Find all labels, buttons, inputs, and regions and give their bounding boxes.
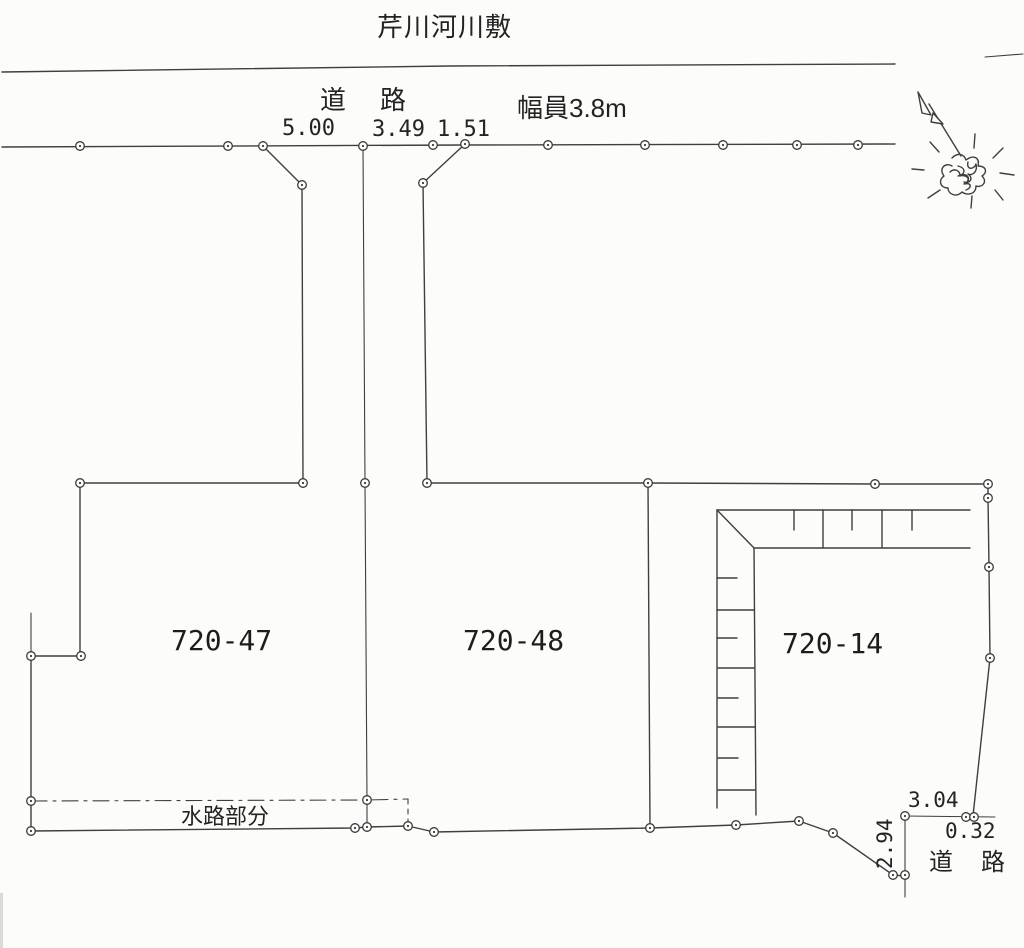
parcel-label-720-48: 720-48 <box>463 626 564 657</box>
parcel-48-14-north-boundary <box>427 483 988 484</box>
parcel-47-west-boundary <box>31 483 80 656</box>
south-boundary <box>31 821 905 876</box>
top-road-label: 道 路 <box>320 86 410 115</box>
dimension-3-49: 3.49 <box>372 118 425 142</box>
waterway-label: 水路部分 <box>181 805 269 829</box>
dim-line-horizontal <box>905 816 995 817</box>
riverbed-edge-line <box>2 64 895 72</box>
map-title: 芹川河川敷 <box>377 13 512 42</box>
dimension-5-00: 5.00 <box>282 117 335 141</box>
dimension-1-51: 1.51 <box>437 118 490 142</box>
parcel-47-east-upper-boundary <box>263 146 303 483</box>
bottom-road-label: 道 路 <box>929 850 1007 876</box>
waterway-dashdot-line <box>31 799 408 801</box>
road-top-line <box>2 144 895 147</box>
parcel-48-14-divider <box>648 483 650 828</box>
dimension-0-32: 0.32 <box>945 820 996 843</box>
north-arrow-icon <box>912 92 1014 208</box>
retaining-wall-symbol <box>717 510 970 815</box>
parcel-48-west-upper-boundary <box>423 144 465 483</box>
east-boundary <box>973 484 990 816</box>
dimension-2-94: 2.94 <box>874 818 897 869</box>
parcel-label-720-47: 720-47 <box>171 626 272 657</box>
survey-map-canvas: 芹川河川敷 道 路 幅員3.8m 5.00 3.49 1.51 720-47 7… <box>0 0 1024 948</box>
dimension-3-04: 3.04 <box>908 789 959 812</box>
scan-artifact <box>0 893 3 948</box>
road-width-label: 幅員3.8m <box>517 94 627 123</box>
parcel-label-720-14: 720-14 <box>782 629 883 660</box>
survey-map-drawing <box>0 0 1024 948</box>
top-right-edge-line <box>985 54 1023 57</box>
